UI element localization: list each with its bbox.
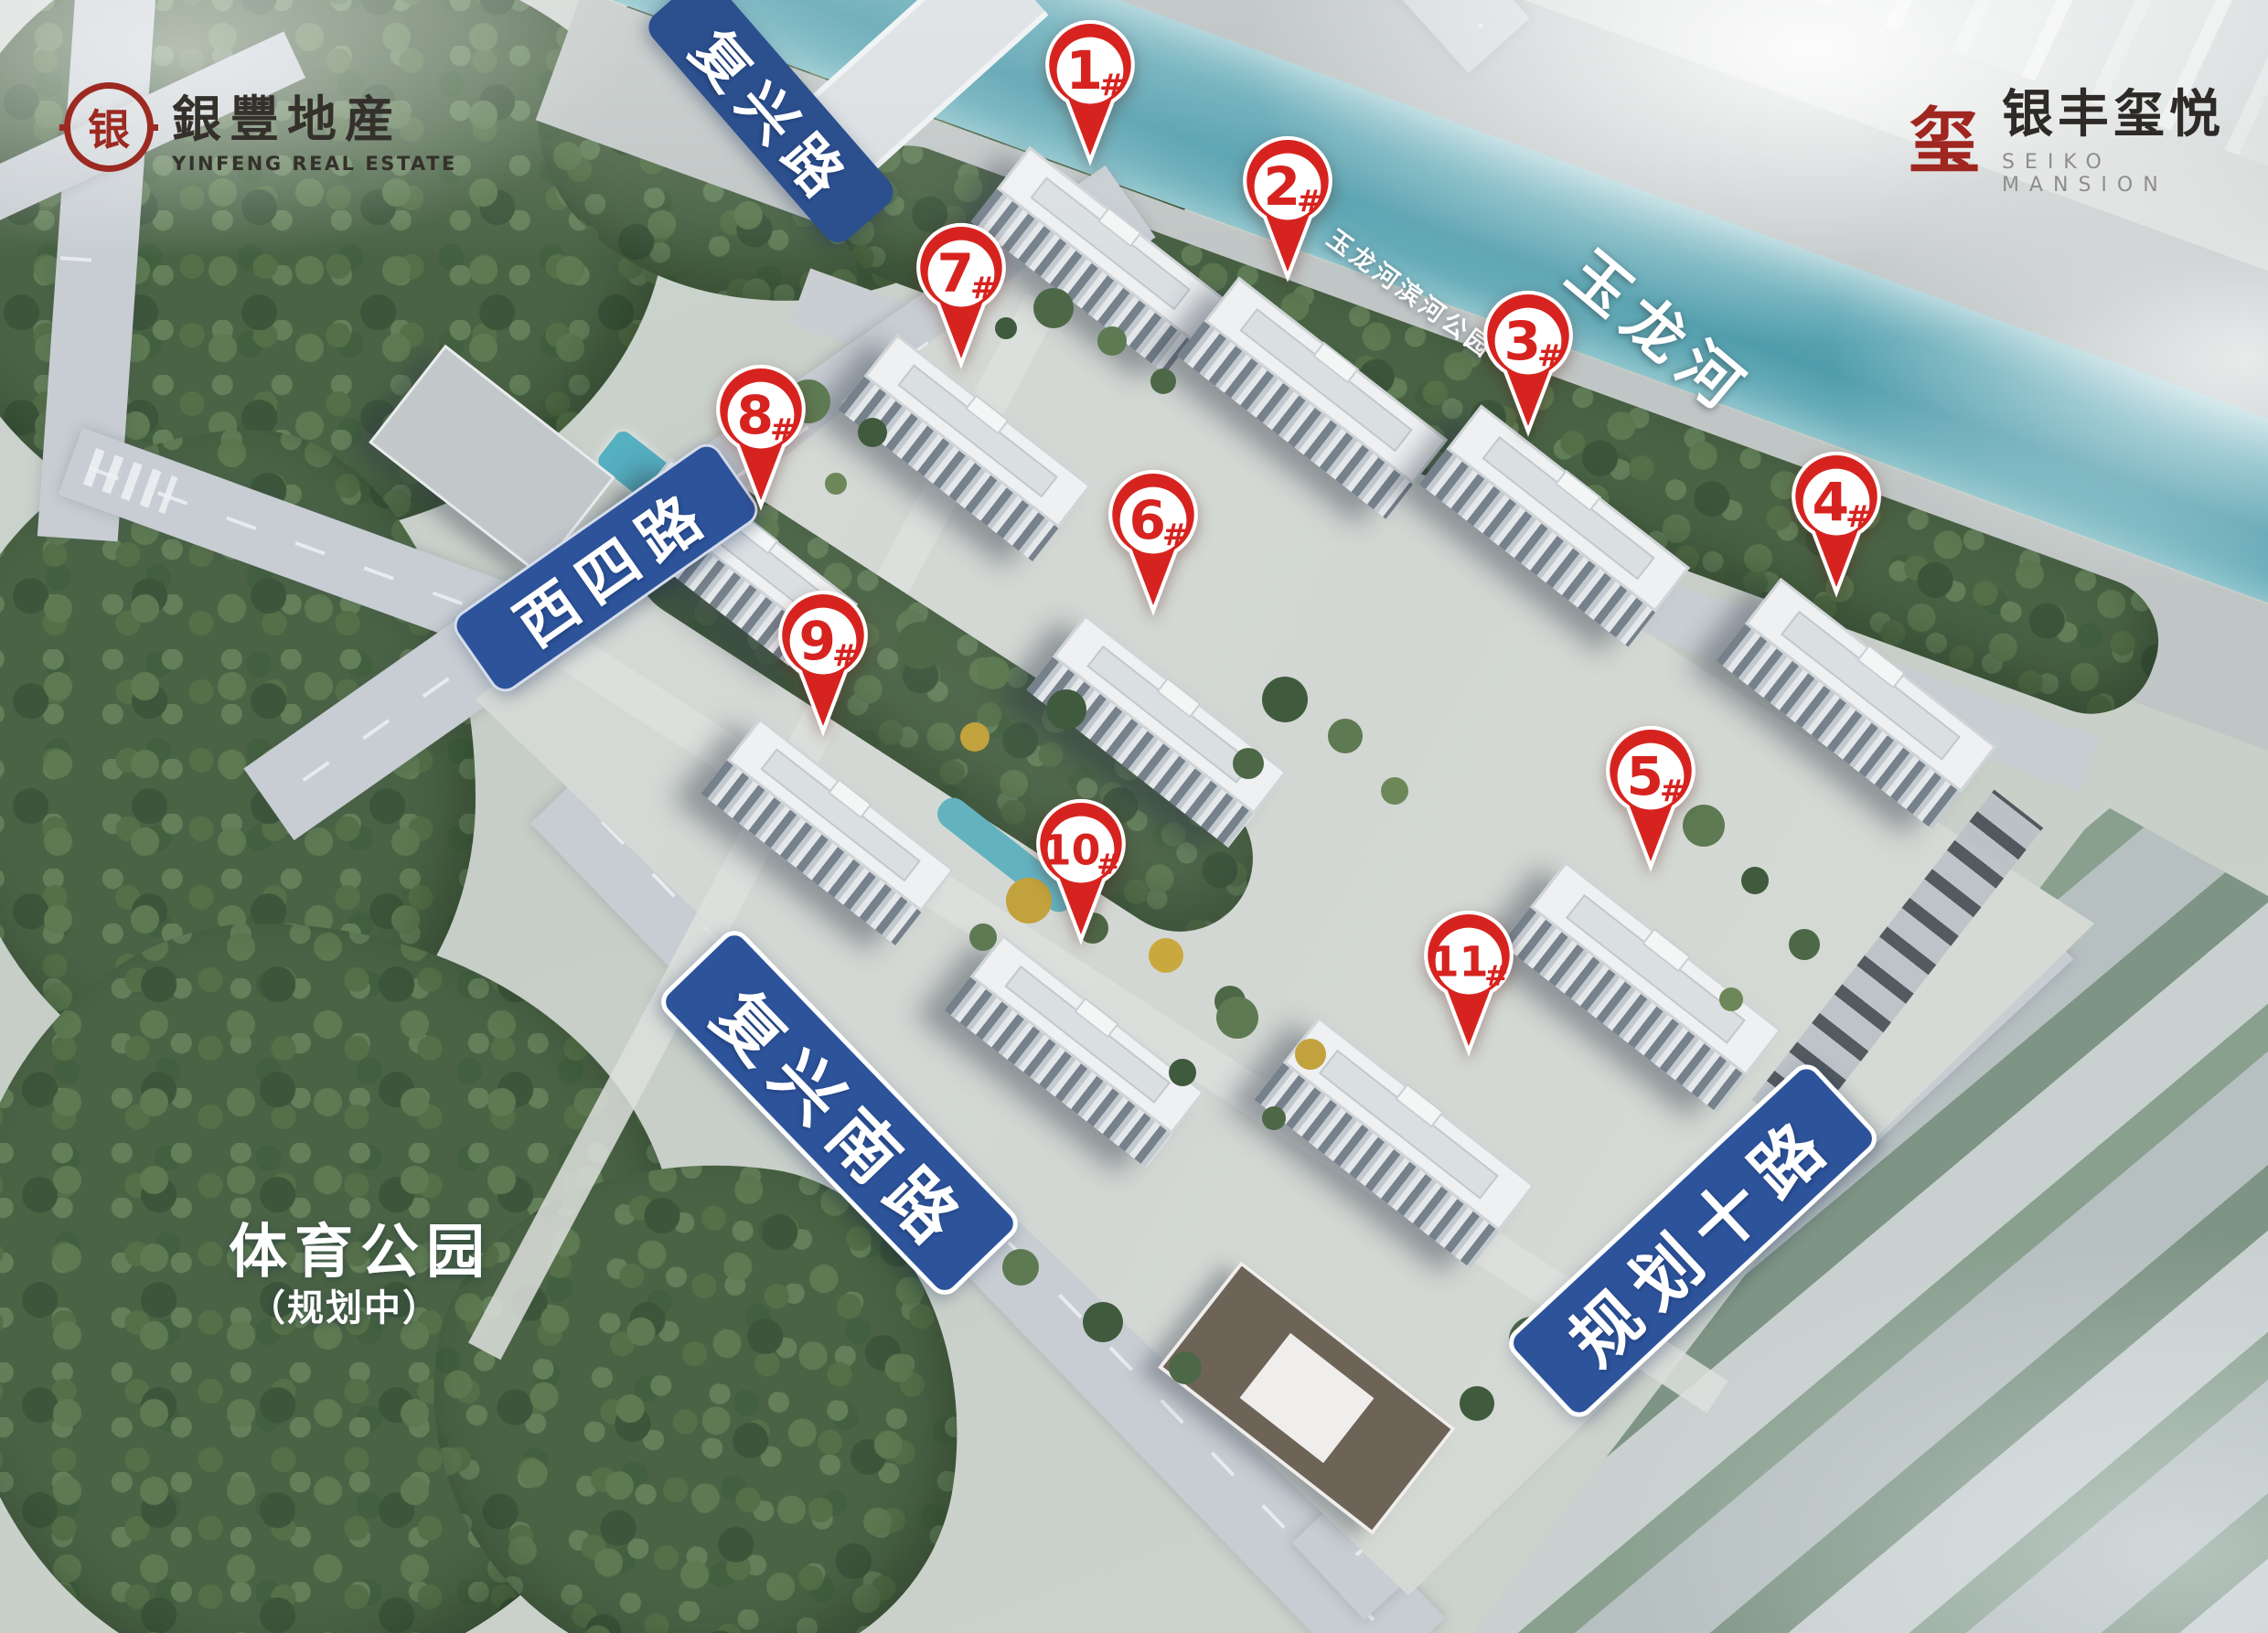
- building-markers-layer: 1#2#3#4#5#6#7#8#9#10#11#: [0, 0, 2268, 1633]
- svg-text:#: #: [1099, 67, 1125, 102]
- developer-seal-icon: 银: [64, 82, 154, 172]
- project-name-cn: 银丰玺悦: [2002, 73, 2268, 147]
- svg-text:4: 4: [1812, 471, 1849, 533]
- svg-text:6: 6: [1129, 489, 1166, 551]
- building-marker-4[interactable]: 4#: [1789, 454, 1884, 594]
- svg-text:#: #: [1660, 773, 1685, 808]
- building-marker-1[interactable]: 1#: [1043, 23, 1138, 163]
- building-marker-8[interactable]: 8#: [713, 368, 808, 507]
- project-mark-icon: 玺: [1907, 94, 1982, 176]
- svg-text:2: 2: [1263, 155, 1300, 218]
- project-logo: 玺 银丰玺悦 SEIKO MANSION: [1907, 73, 2268, 197]
- developer-name-cn: 銀豐地産: [172, 79, 457, 151]
- svg-text:5: 5: [1626, 745, 1664, 807]
- svg-text:3: 3: [1503, 310, 1541, 372]
- svg-text:#: #: [1097, 849, 1120, 881]
- svg-text:#: #: [770, 411, 796, 447]
- svg-text:10: 10: [1043, 827, 1101, 875]
- svg-text:#: #: [970, 270, 996, 305]
- svg-text:#: #: [1297, 183, 1322, 219]
- building-marker-6[interactable]: 6#: [1106, 473, 1201, 613]
- building-marker-7[interactable]: 7#: [914, 226, 1009, 366]
- site-plan-rendering: 复兴路 西四路 复兴南路 规划十路 玉龙河 玉龙河滨河公园 体育公园 （规划中）…: [0, 0, 2268, 1633]
- building-marker-5[interactable]: 5#: [1603, 729, 1698, 869]
- building-marker-11[interactable]: 11#: [1421, 913, 1516, 1053]
- svg-text:7: 7: [936, 242, 974, 304]
- building-marker-10[interactable]: 10#: [1033, 802, 1129, 942]
- developer-logo: 银 銀豐地産 YINFENG REAL ESTATE: [64, 79, 457, 175]
- svg-text:1: 1: [1065, 39, 1103, 101]
- svg-text:11: 11: [1430, 938, 1489, 987]
- svg-text:#: #: [832, 637, 858, 673]
- svg-text:#: #: [1484, 960, 1508, 993]
- developer-name-en: YINFENG REAL ESTATE: [172, 153, 457, 175]
- svg-text:9: 9: [798, 610, 836, 672]
- svg-text:#: #: [1537, 337, 1563, 373]
- building-marker-3[interactable]: 3#: [1481, 294, 1576, 433]
- building-marker-2[interactable]: 2#: [1240, 139, 1335, 279]
- svg-text:#: #: [1162, 517, 1188, 552]
- project-name-en: SEIKO MANSION: [2002, 151, 2268, 197]
- building-marker-9[interactable]: 9#: [776, 593, 871, 733]
- svg-text:#: #: [1845, 498, 1871, 534]
- svg-text:8: 8: [736, 384, 774, 446]
